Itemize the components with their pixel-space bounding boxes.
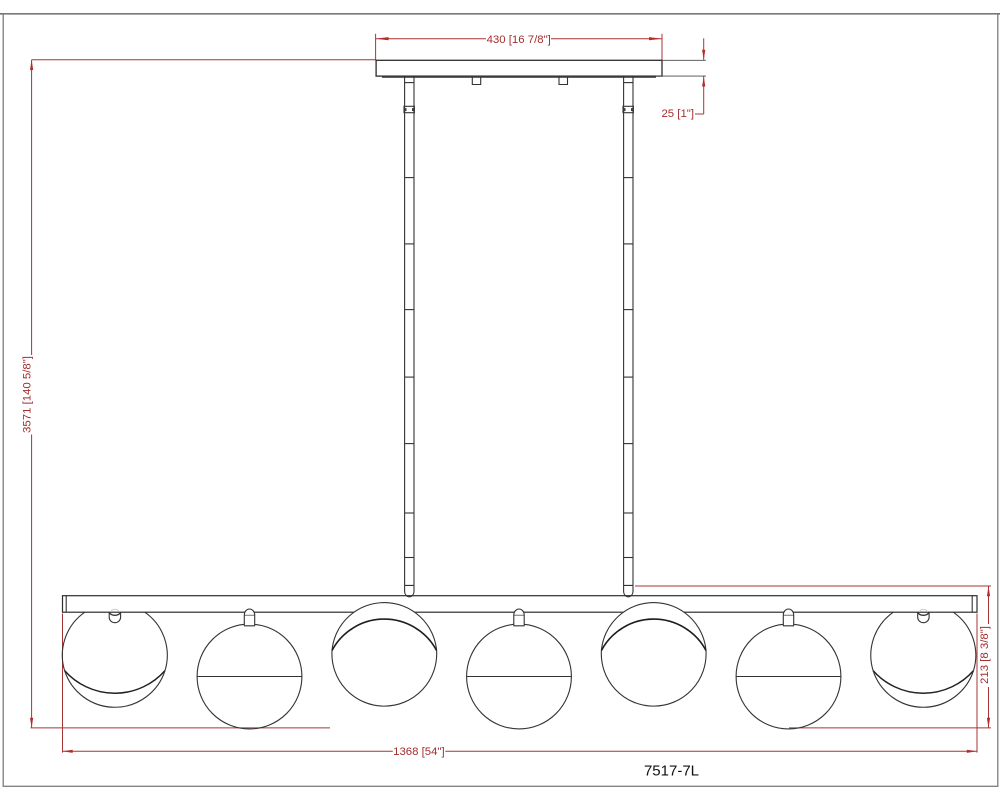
- svg-text:3571 [140 5/8"]: 3571 [140 5/8"]: [22, 356, 34, 433]
- svg-text:213 [8 3/8"]: 213 [8 3/8"]: [979, 626, 991, 684]
- svg-text:1368 [54"]: 1368 [54"]: [393, 746, 445, 758]
- svg-text:7517-7L: 7517-7L: [644, 762, 699, 779]
- svg-text:430 [16 7/8"]: 430 [16 7/8"]: [487, 34, 551, 46]
- svg-text:25 [1"]: 25 [1"]: [661, 108, 694, 120]
